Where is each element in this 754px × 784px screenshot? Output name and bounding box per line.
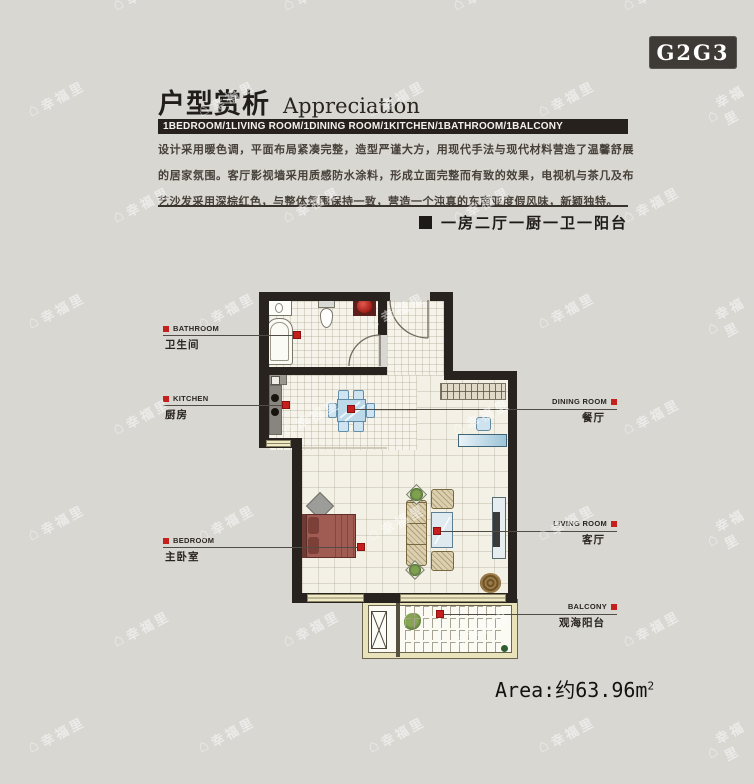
watermark-text: 幸福里: [207, 711, 258, 750]
balcony-divider: [396, 601, 400, 657]
watermark: ⌂幸福里: [699, 79, 754, 136]
armchair: [431, 489, 454, 509]
stove-burner-2: [271, 408, 279, 416]
unit-type-badge: G2G3: [649, 36, 737, 69]
balcony-deck-mark: [441, 618, 447, 628]
watermark: ⌂幸福里: [109, 0, 173, 15]
watermark-text: 幸福里: [377, 711, 428, 750]
house-icon: ⌂: [364, 735, 382, 757]
balcony-deck-mark: [450, 618, 456, 628]
kitchen-window: [266, 440, 291, 447]
house-icon: ⌂: [449, 0, 467, 15]
house-icon: ⌂: [619, 629, 637, 651]
page: G2G3 户型赏析 Appreciation 1BEDROOM/1LIVING …: [0, 0, 754, 784]
wall-bathroom-right: [378, 292, 387, 335]
watermark-text: 幸福里: [712, 715, 754, 765]
house-icon: ⌂: [619, 0, 637, 15]
console-table: [458, 434, 507, 447]
watermark-text: 幸福里: [0, 393, 3, 432]
balcony-deck-mark: [468, 642, 474, 652]
balcony-deck-mark: [441, 630, 447, 640]
watermark-text: 幸福里: [292, 605, 343, 644]
balcony-label-cn: 观海阳台: [559, 615, 605, 630]
tv: [493, 512, 500, 547]
room-list-bar: 1BEDROOM/1LIVING ROOM/1DINING ROOM/1KITC…: [158, 119, 628, 134]
living-label-cn: 客厅: [553, 532, 605, 547]
watermark-text: 幸福里: [292, 0, 343, 8]
watermark: ⌂幸福里: [699, 503, 754, 560]
sofa: [406, 500, 427, 566]
balcony-deck-mark: [414, 642, 420, 652]
balcony-deck-mark: [414, 618, 420, 628]
layout-subtitle: 一房二厅一厨一卫一阳台: [158, 212, 628, 233]
bathroom-label-cn: 卫生间: [165, 337, 219, 352]
balcony-deck-mark: [477, 642, 483, 652]
house-icon: ⌂: [279, 629, 297, 651]
watermark-text: 幸福里: [547, 287, 598, 326]
bedroom-label-cn: 主卧室: [165, 549, 214, 564]
kitchen-label-cn: 厨房: [165, 407, 208, 422]
watermark: ⌂幸福里: [24, 287, 88, 334]
wall-left-inner: [292, 448, 302, 603]
wall-top: [259, 292, 390, 301]
pillow: [308, 517, 319, 534]
balcony-deck-mark: [459, 630, 465, 640]
watermark-text: 幸福里: [632, 181, 683, 220]
living-label: LIVING ROOM 客厅: [553, 519, 617, 547]
armchair: [431, 551, 454, 571]
subtitle-text: 一房二厅一厨一卫一阳台: [441, 212, 628, 233]
watermark: ⌂幸福里: [0, 181, 3, 228]
house-icon: ⌂: [24, 523, 42, 545]
balcony-deck-mark: [432, 618, 438, 628]
watermark: ⌂幸福里: [279, 0, 343, 15]
stool: [476, 417, 491, 431]
watermark-text: 幸福里: [632, 605, 683, 644]
house-icon: ⌂: [109, 417, 127, 439]
balcony-marker: [436, 610, 444, 618]
house-icon: ⌂: [703, 317, 721, 339]
watermark-text: 幸福里: [712, 291, 754, 341]
balcony-deck-mark: [405, 618, 411, 628]
balcony-deck-mark: [423, 606, 429, 616]
dining-marker: [347, 405, 355, 413]
watermark: ⌂幸福里: [534, 711, 598, 758]
balcony-deck-mark: [459, 618, 465, 628]
house-icon: ⌂: [534, 311, 552, 333]
balcony-deck-mark: [423, 642, 429, 652]
entry-floor: [387, 301, 444, 375]
watermark: ⌂幸福里: [619, 393, 683, 440]
balcony-deck-mark: [423, 630, 429, 640]
balcony-deck-mark: [432, 630, 438, 640]
kitchen-sink-box: [271, 376, 280, 385]
balcony-deck-mark: [432, 642, 438, 652]
balcony-label-en: BALCONY: [568, 602, 607, 611]
balcony-deck: [403, 604, 507, 654]
balcony-deck-mark: [405, 606, 411, 616]
kitchen-threshold: [292, 447, 387, 449]
watermark: ⌂幸福里: [364, 711, 428, 758]
area-value: Area:约63.96m: [495, 678, 647, 702]
wall-left-outer: [259, 292, 269, 448]
bathroom-sink-basin: [275, 303, 283, 313]
house-icon: ⌂: [534, 523, 552, 545]
bathroom-marker: [293, 331, 301, 339]
house-icon: ⌂: [109, 0, 127, 15]
balcony-deck-mark: [405, 630, 411, 640]
watermark-text: 幸福里: [0, 181, 3, 220]
watermark: ⌂幸福里: [534, 287, 598, 334]
wall-entry-right: [444, 292, 453, 380]
balcony-deck-mark: [495, 618, 501, 628]
watermark: ⌂幸福里: [279, 605, 343, 652]
watermark-text: 幸福里: [632, 393, 683, 432]
house-icon: ⌂: [194, 735, 212, 757]
watermark-text: 幸福里: [122, 605, 173, 644]
label-square-icon: [163, 538, 169, 544]
house-icon: ⌂: [109, 629, 127, 651]
stove-burner-1: [271, 394, 279, 402]
balcony-deck-mark: [414, 606, 420, 616]
wall-right: [508, 380, 517, 603]
house-icon: ⌂: [24, 311, 42, 333]
label-square-icon: [163, 326, 169, 332]
balcony-deck-mark: [495, 630, 501, 640]
area-sup: 2: [647, 679, 654, 692]
bedroom-label: BEDROOM 主卧室: [163, 536, 214, 564]
dining-label-en: DINING ROOM: [552, 397, 607, 406]
watermark-text: 幸福里: [207, 287, 258, 326]
watermark: ⌂幸福里: [109, 605, 173, 652]
kitchen-marker: [282, 401, 290, 409]
dining-label: DINING ROOM 餐厅: [552, 397, 617, 425]
bathroom-label: BATHROOM 卫生间: [163, 324, 219, 352]
watermark-text: 幸福里: [632, 0, 683, 8]
house-icon: ⌂: [703, 741, 721, 763]
label-square-icon: [611, 399, 617, 405]
watermark: ⌂幸福里: [699, 291, 754, 348]
house-icon: ⌂: [109, 205, 127, 227]
house-icon: ⌂: [24, 99, 42, 121]
balcony-ac-pad: [371, 611, 387, 649]
page-title-en: Appreciation: [283, 94, 420, 118]
watermark: ⌂幸福里: [534, 75, 598, 122]
subtitle-square-icon: [419, 216, 432, 229]
dining-chair: [353, 421, 364, 432]
watermark-text: 幸福里: [712, 503, 754, 553]
kitchen-label: KITCHEN 厨房: [163, 394, 208, 422]
balcony-deck-mark: [450, 642, 456, 652]
watermark-text: 幸福里: [547, 711, 598, 750]
label-square-icon: [163, 396, 169, 402]
watermark-text: 幸福里: [547, 75, 598, 114]
pillow: [308, 537, 319, 554]
house-icon: ⌂: [24, 735, 42, 757]
house-icon: ⌂: [703, 529, 721, 551]
balcony-deck-mark: [441, 642, 447, 652]
balcony-deck-mark: [486, 630, 492, 640]
watermark-text: 幸福里: [462, 0, 513, 8]
washbasin-bowl: [357, 299, 372, 313]
bedroom-marker: [357, 543, 365, 551]
watermark: ⌂幸福里: [24, 499, 88, 546]
watermark: ⌂幸福里: [699, 715, 754, 772]
balcony-deck-mark: [450, 630, 456, 640]
living-label-en: LIVING ROOM: [553, 519, 607, 528]
watermark: ⌂幸福里: [619, 0, 683, 15]
dining-label-cn: 餐厅: [552, 410, 605, 425]
balcony-deck-mark: [486, 618, 492, 628]
balcony-deck-mark: [423, 618, 429, 628]
watermark-text: 幸福里: [37, 711, 88, 750]
watermark-text: 幸福里: [0, 605, 3, 644]
balcony-deck-mark: [495, 642, 501, 652]
house-icon: ⌂: [703, 105, 721, 127]
house-icon: ⌂: [279, 0, 297, 15]
balcony-deck-mark: [414, 630, 420, 640]
balcony-deck-mark: [468, 618, 474, 628]
label-square-icon: [611, 521, 617, 527]
watermark: ⌂幸福里: [194, 711, 258, 758]
house-icon: ⌂: [534, 735, 552, 757]
balcony-label: BALCONY 观海阳台: [559, 602, 617, 630]
watermark: ⌂幸福里: [449, 0, 513, 15]
wall-bathroom-bottom: [259, 367, 387, 375]
watermark-text: 幸福里: [37, 499, 88, 538]
bathtub-inner: [270, 322, 289, 361]
balcony-deck-mark: [477, 618, 483, 628]
label-square-icon: [611, 604, 617, 610]
watermark-text: 幸福里: [207, 499, 258, 538]
dining-chair: [328, 403, 337, 418]
balcony-sliding-door: [400, 594, 506, 602]
balcony-deck-mark: [405, 642, 411, 652]
house-icon: ⌂: [619, 417, 637, 439]
bathroom-label-en: BATHROOM: [173, 324, 219, 333]
divider-line: [158, 205, 628, 207]
watermark-text: 幸福里: [712, 79, 754, 129]
bedroom-label-en: BEDROOM: [173, 536, 214, 545]
page-title-cn: 户型赏析: [158, 82, 270, 121]
balcony-deck-mark: [468, 630, 474, 640]
balcony-deck-mark: [459, 642, 465, 652]
watermark: ⌂幸福里: [0, 393, 3, 440]
balcony-deck-mark: [477, 630, 483, 640]
watermark-text: 幸福里: [37, 75, 88, 114]
bed-blanket: [330, 515, 355, 557]
floor-plant: [480, 573, 501, 593]
watermark: ⌂幸福里: [0, 605, 3, 652]
living-marker: [433, 527, 441, 535]
watermark: ⌂幸福里: [24, 75, 88, 122]
dining-chair: [338, 421, 349, 432]
watermark-text: 幸福里: [37, 287, 88, 326]
watermark: ⌂幸福里: [0, 0, 3, 15]
watermark: ⌂幸福里: [619, 605, 683, 652]
wall-dining-top: [444, 371, 517, 380]
area-text: Area:约63.96m2: [495, 674, 654, 703]
page-title: 户型赏析 Appreciation: [158, 82, 420, 121]
watermark-text: 幸福里: [122, 0, 173, 8]
watermark-text: 幸福里: [0, 0, 3, 8]
entry-cabinet: [440, 383, 506, 400]
watermark: ⌂幸福里: [24, 711, 88, 758]
balcony-deck-mark: [486, 642, 492, 652]
dining-chair: [366, 403, 375, 418]
kitchen-label-en: KITCHEN: [173, 394, 208, 403]
description-paragraph: 设计采用暖色调，平面布局紧凑完整，造型严谨大方，用现代手法与现代材料营造了温馨舒…: [158, 137, 634, 215]
bedroom-window: [307, 594, 364, 602]
